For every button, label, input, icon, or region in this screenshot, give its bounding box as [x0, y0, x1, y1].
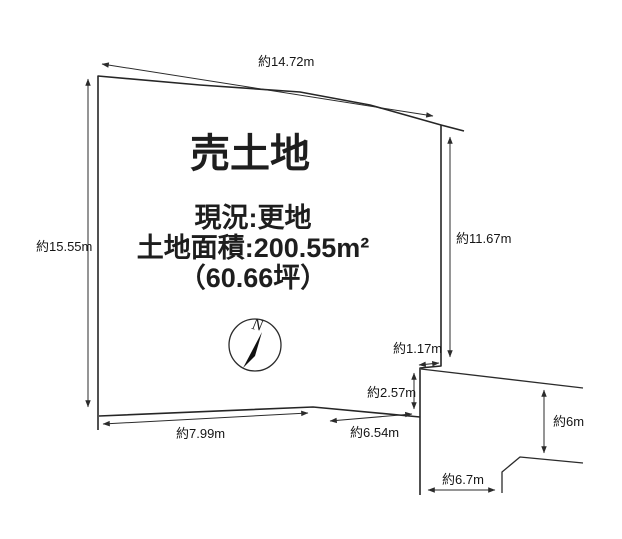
dim-line-bottom-right [330, 414, 412, 421]
dim-line-top [102, 64, 433, 116]
dim-label-right: 約11.67m [456, 232, 511, 246]
listing-status: 現況:更地 [38, 203, 468, 233]
dim-label-top: 約14.72m [258, 55, 314, 69]
listing-title: 売土地 [130, 133, 370, 175]
dim-label-notch-height: 約2.57m [367, 386, 416, 400]
listing-info-block: 現況:更地 土地面積:200.55m² （60.66坪） [38, 203, 468, 293]
dim-label-road-side: 約6m [553, 415, 584, 429]
land-plot-diagram: N 売土地 現況:更地 土地面積:200.55m² （60.66坪） 約14.7… [0, 0, 622, 539]
dim-label-road-frontage: 約6.7m [442, 473, 484, 487]
dim-label-left: 約15.55m [36, 240, 92, 254]
road-boundary-upper [421, 369, 583, 388]
listing-area-tsubo: （60.66坪） [38, 263, 468, 293]
listing-area: 土地面積:200.55m² [38, 233, 468, 263]
dim-label-notch-width: 約1.17m [393, 342, 442, 356]
compass-needle-icon [243, 332, 262, 368]
dim-line-notch-width [419, 363, 439, 365]
dim-label-bottom-left: 約7.99m [176, 427, 225, 441]
plot-outline-right-notch [420, 125, 441, 495]
road-boundary-lower [502, 457, 583, 493]
dim-label-bottom-right: 約6.54m [350, 426, 399, 440]
